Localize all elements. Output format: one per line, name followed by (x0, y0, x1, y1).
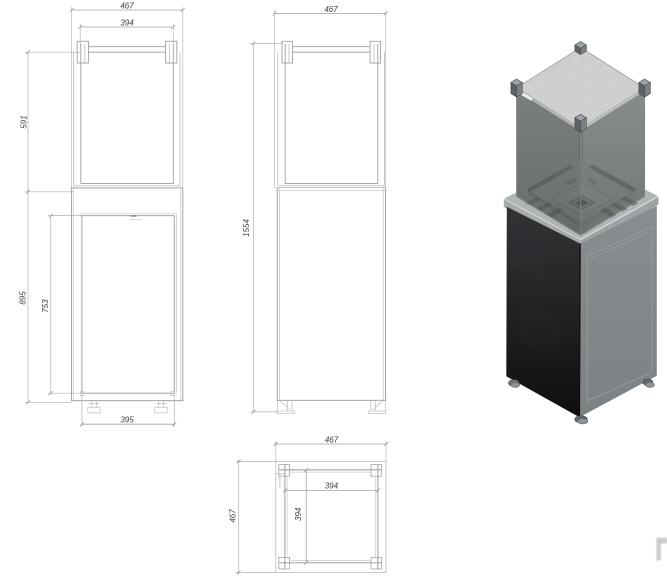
svg-text:467: 467 (228, 509, 237, 523)
svg-text:467: 467 (324, 5, 338, 14)
svg-text:467: 467 (325, 436, 339, 445)
svg-text:753: 753 (41, 299, 50, 313)
svg-text:895: 895 (18, 291, 27, 305)
svg-text:395: 395 (120, 416, 134, 425)
svg-text:467: 467 (120, 2, 134, 11)
svg-text:394: 394 (294, 507, 303, 521)
svg-text:1554: 1554 (242, 219, 251, 237)
svg-text:591: 591 (20, 115, 29, 128)
svg-text:394: 394 (120, 19, 134, 28)
svg-text:394: 394 (325, 482, 339, 491)
